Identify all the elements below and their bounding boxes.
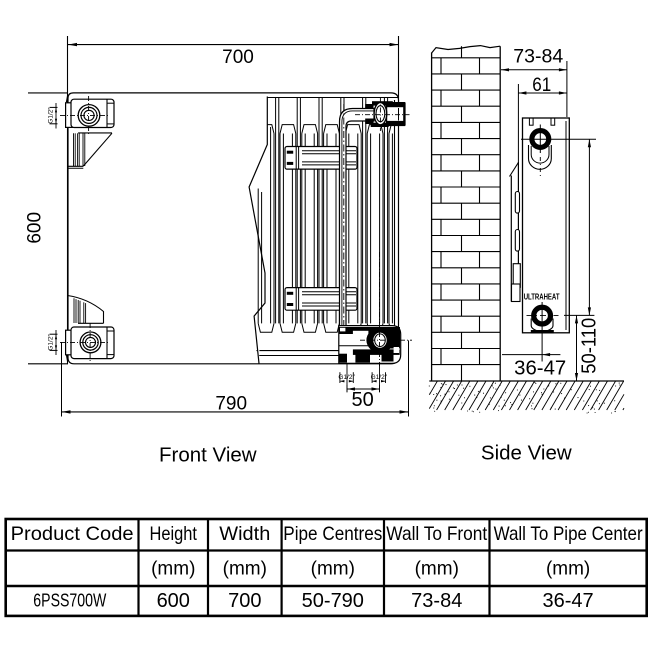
- svg-text:Pipe Centres: Pipe Centres: [283, 523, 382, 545]
- svg-text:36-47: 36-47: [543, 590, 594, 612]
- svg-text:(mm): (mm): [223, 558, 267, 579]
- svg-text:Product Code: Product Code: [11, 523, 134, 545]
- svg-text:Wall To Front: Wall To Front: [386, 523, 488, 545]
- svg-text:ULTRAHEAT: ULTRAHEAT: [524, 292, 560, 301]
- svg-text:Wall To Pipe Center: Wall To Pipe Center: [494, 523, 643, 545]
- svg-text:790: 790: [215, 393, 247, 414]
- svg-text:Width: Width: [219, 523, 270, 545]
- svg-text:G1/2″: G1/2″: [47, 334, 54, 351]
- svg-text:(mm): (mm): [311, 558, 355, 579]
- svg-text:6PSS700W: 6PSS700W: [33, 591, 106, 611]
- svg-text:73-84: 73-84: [513, 46, 563, 67]
- svg-text:36-47: 36-47: [514, 358, 566, 380]
- svg-text:G1/2″: G1/2″: [371, 374, 388, 381]
- svg-text:700: 700: [222, 47, 254, 68]
- svg-text:73-84: 73-84: [411, 590, 462, 612]
- svg-text:G1/2″: G1/2″: [47, 107, 54, 124]
- svg-text:700: 700: [228, 590, 261, 612]
- svg-text:600: 600: [25, 212, 46, 244]
- svg-text:600: 600: [157, 590, 190, 612]
- svg-text:(mm): (mm): [546, 558, 590, 579]
- svg-text:(mm): (mm): [151, 558, 195, 579]
- svg-text:50-790: 50-790: [302, 590, 364, 612]
- svg-text:(mm): (mm): [415, 558, 459, 579]
- svg-text:Front View: Front View: [159, 444, 257, 467]
- svg-text:Height: Height: [150, 523, 198, 545]
- svg-text:Side View: Side View: [481, 442, 572, 465]
- svg-text:50: 50: [351, 389, 373, 411]
- svg-text:50-110: 50-110: [579, 318, 601, 374]
- svg-text:61: 61: [532, 75, 551, 96]
- svg-text:G1/2″: G1/2″: [338, 374, 355, 381]
